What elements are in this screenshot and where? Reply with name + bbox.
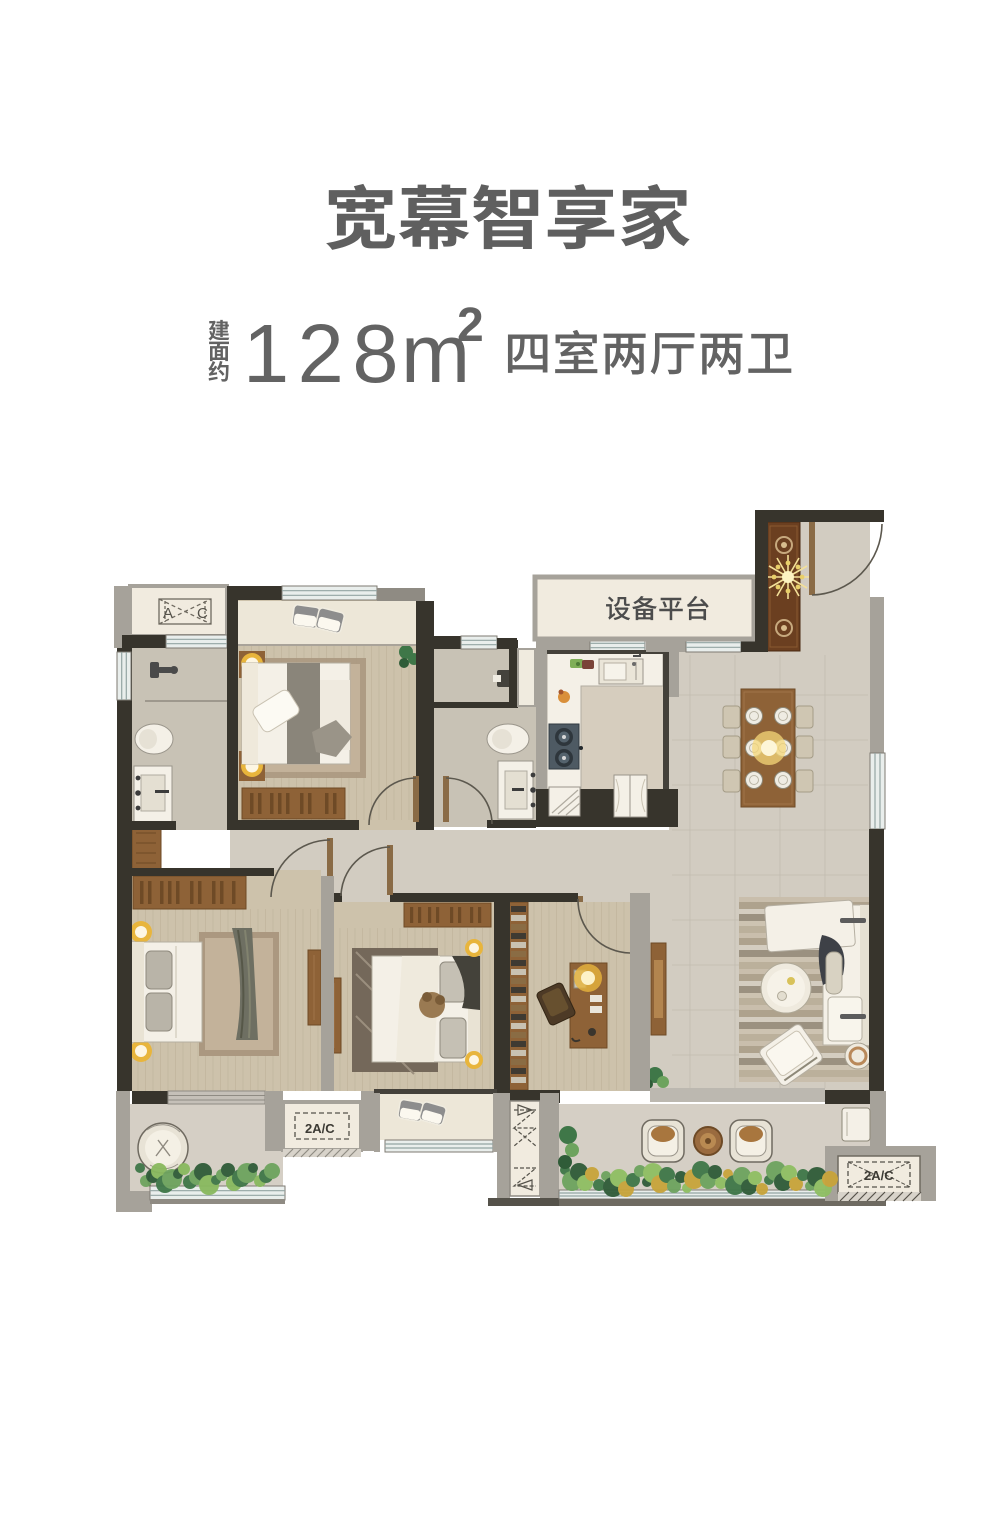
svg-text:A: A (163, 605, 173, 622)
svg-text:128: 128 (243, 307, 407, 400)
svg-text:C: C (197, 605, 208, 622)
svg-text:2: 2 (457, 299, 484, 352)
svg-text:2A/C: 2A/C (305, 1121, 335, 1136)
svg-text:2A/C: 2A/C (864, 1168, 894, 1183)
